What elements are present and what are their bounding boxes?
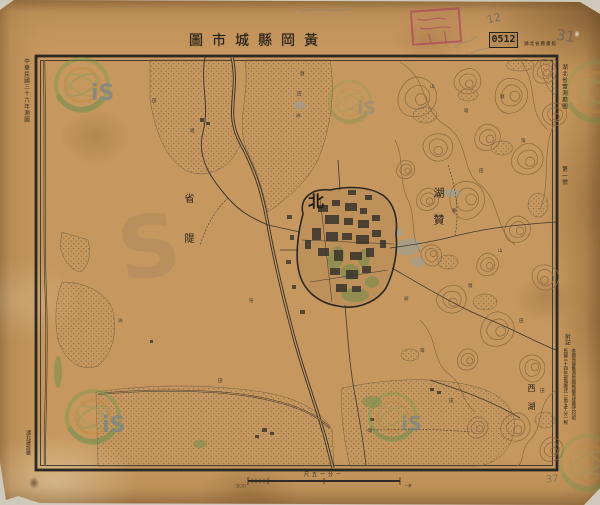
map-canvas: iS <box>0 0 600 505</box>
river-bank-line <box>44 60 47 466</box>
map-tiny-label: 洲 <box>118 318 123 324</box>
map-tiny-label: 田 <box>152 98 157 104</box>
map-tiny-label: 廟 <box>452 207 457 214</box>
library-seal-stamp <box>410 7 462 45</box>
marginal-note-column-2: 民國三十四年部頒圖式一萬五千分一製 <box>562 348 567 425</box>
map-tiny-label: 山 <box>498 247 503 254</box>
dike-label: 省隄 <box>180 193 195 273</box>
catalog-number-stamp: 0512 <box>489 32 518 48</box>
map-tiny-label: 田 <box>449 398 454 404</box>
map-tiny-label: 田 <box>297 91 302 97</box>
pencil-mark-bottom: 37 <box>545 473 559 485</box>
map-tiny-label: 田 <box>540 388 545 394</box>
marginal-note-column-1: 本圖係據舊測原圖縮繪而成圖式均照 <box>570 348 575 420</box>
map-tiny-label: 塘 <box>300 70 305 77</box>
scale-left-label: 五〇〇 <box>236 483 247 488</box>
map-tiny-label: 田 <box>218 378 223 384</box>
margin-note-survey-year: 中華民國三十六年測圖 <box>22 58 30 123</box>
map-tiny-label: 田 <box>519 318 524 324</box>
map-tiny-label: 窑 <box>249 297 254 304</box>
lake-label: 湖贊 <box>430 187 446 241</box>
catalog-note: 湖北省圖書館 <box>524 41 557 47</box>
margin-note-series: 湖北省實測廳圖 <box>560 64 568 110</box>
marginal-note-header: 附記 <box>563 334 571 345</box>
scale-caption: 尺五一分一 <box>304 471 344 478</box>
map-tiny-label: 山 <box>430 83 435 90</box>
map-tiny-label: 灣 <box>420 347 425 354</box>
map-tiny-label: 坡 <box>464 107 469 114</box>
map-tiny-label: 灣 <box>521 137 526 144</box>
map-tiny-label: 坡 <box>404 295 409 302</box>
pencil-mark-right: 31 <box>555 26 576 46</box>
scale-right-label: 一粁 <box>405 483 413 488</box>
map-tiny-label: 塘 <box>500 93 505 100</box>
map-tiny-label: 洲 <box>296 113 301 119</box>
margin-note-sheet-number: 第一號 <box>560 166 568 186</box>
map-tiny-label: 塘 <box>468 282 473 289</box>
page-title: 圖市城縣岡黃 <box>178 30 338 50</box>
north-label: 北 <box>308 188 324 212</box>
west-lake-label: 西湖 <box>526 384 537 420</box>
margin-note-publisher: 湖北建設廳 <box>25 430 32 455</box>
map-tiny-label: 田 <box>479 168 484 174</box>
map-sheet: iS <box>0 0 600 505</box>
map-tiny-label: 塘 <box>190 127 195 134</box>
scale-bar: 尺五一分一 五〇〇 一粁 <box>236 471 413 488</box>
